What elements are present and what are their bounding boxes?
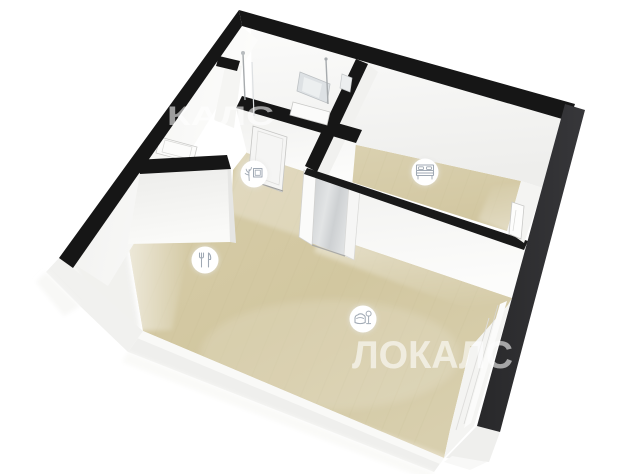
svg-text:КАЛС: КАЛС [167, 101, 274, 131]
svg-text:ЛОКАЛС: ЛОКАЛС [352, 334, 513, 377]
